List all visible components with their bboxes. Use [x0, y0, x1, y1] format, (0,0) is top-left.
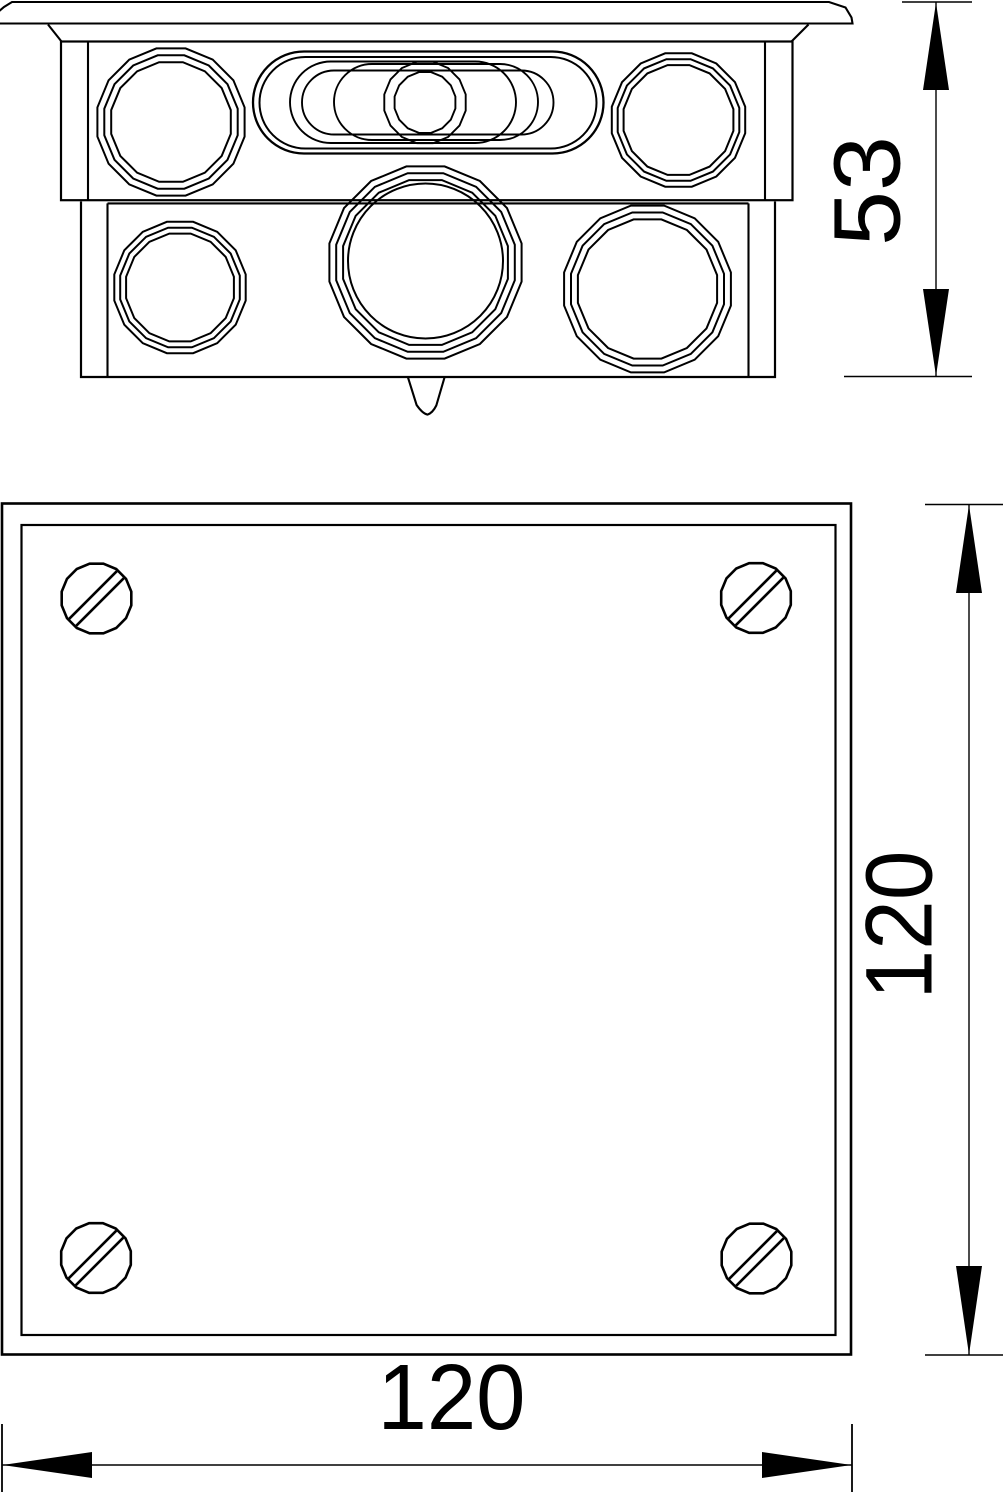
svg-text:120: 120 [847, 851, 953, 1000]
svg-text:120: 120 [378, 1345, 526, 1449]
svg-text:53: 53 [815, 136, 921, 246]
